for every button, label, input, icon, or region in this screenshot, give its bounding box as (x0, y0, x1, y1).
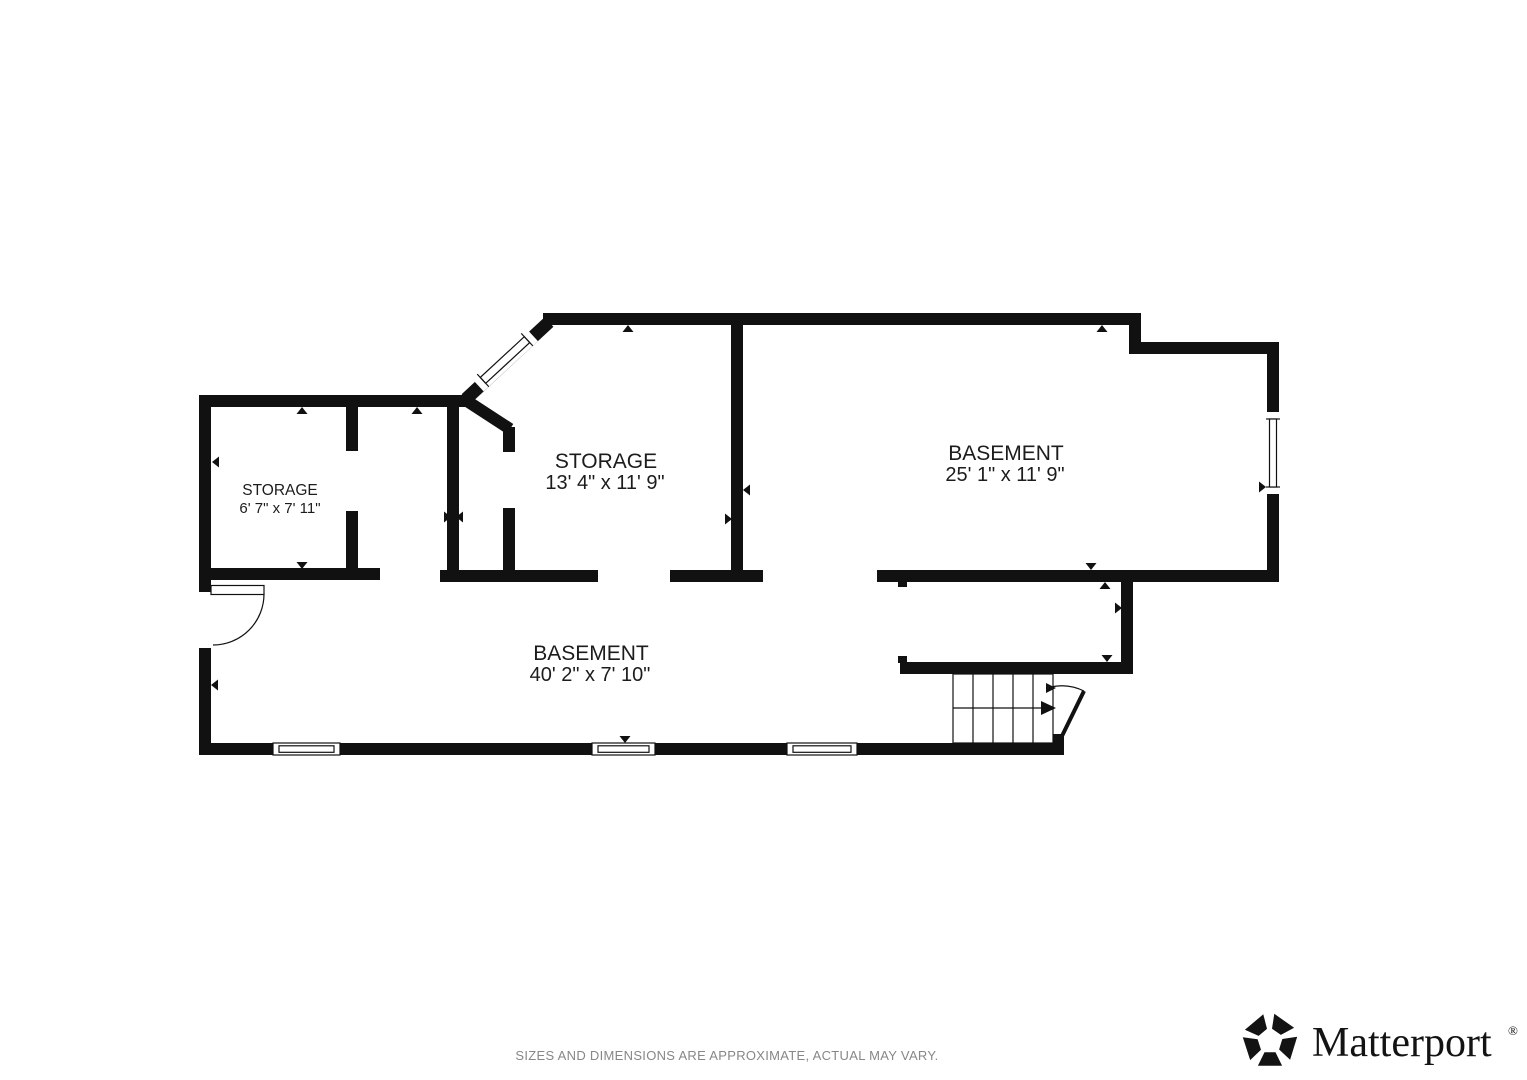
marker-up-icon (412, 407, 423, 414)
room-label-basement-long: BASEMENT 40' 2" x 7' 10" (530, 642, 651, 686)
marker-up-icon (623, 325, 634, 332)
room-dimensions: 25' 1" x 11' 9" (945, 464, 1064, 486)
stairs (953, 674, 1056, 743)
registered-mark-icon: ® (1508, 1023, 1518, 1038)
matterport-wordmark: Matterport (1312, 1020, 1492, 1066)
room-dimensions: 40' 2" x 7' 10" (530, 664, 651, 686)
room-label-storage-small: STORAGE 6' 7" x 7' 11" (239, 482, 320, 517)
marker-right-icon (725, 514, 732, 525)
room-dimensions: 13' 4" x 11' 9" (545, 472, 664, 494)
room-labels: STORAGE 6' 7" x 7' 11" STORAGE 13' 4" x … (239, 442, 1064, 686)
marker-down-icon (620, 736, 631, 743)
entry-door (198, 586, 264, 649)
marker-right-icon (1115, 603, 1122, 614)
walls (199, 313, 1279, 755)
window (273, 743, 340, 755)
room-name: STORAGE (555, 450, 657, 473)
marker-left-icon (211, 680, 218, 691)
matterport-icon (1243, 1014, 1297, 1066)
diagonal-window (472, 329, 538, 392)
marker-down-icon (1102, 655, 1113, 662)
right-window (1266, 412, 1280, 494)
stair-door (1051, 686, 1085, 736)
marker-left-icon (743, 485, 750, 496)
marker-down-icon (1086, 563, 1097, 570)
room-name: STORAGE (242, 482, 318, 499)
room-name: BASEMENT (533, 642, 649, 665)
marker-left-icon (212, 457, 219, 468)
matterport-logo: Matterport ® (1242, 1009, 1527, 1080)
marker-right-icon (1259, 482, 1266, 493)
window (592, 743, 655, 755)
floor-plan: STORAGE 6' 7" x 7' 11" STORAGE 13' 4" x … (0, 0, 1527, 1080)
room-dimensions: 6' 7" x 7' 11" (239, 500, 320, 517)
floor-plan-page: STORAGE 6' 7" x 7' 11" STORAGE 13' 4" x … (0, 0, 1527, 1080)
marker-down-icon (297, 562, 308, 569)
marker-up-icon (1100, 582, 1111, 589)
window (787, 743, 857, 755)
diagonal-wall (467, 401, 510, 429)
room-label-storage-main: STORAGE 13' 4" x 11' 9" (545, 450, 664, 494)
marker-up-icon (1097, 325, 1108, 332)
footer-disclaimer: SIZES AND DIMENSIONS ARE APPROXIMATE, AC… (0, 1048, 1454, 1063)
marker-up-icon (297, 407, 308, 414)
room-label-basement-main: BASEMENT 25' 1" x 11' 9" (945, 442, 1064, 486)
room-name: BASEMENT (948, 442, 1064, 465)
